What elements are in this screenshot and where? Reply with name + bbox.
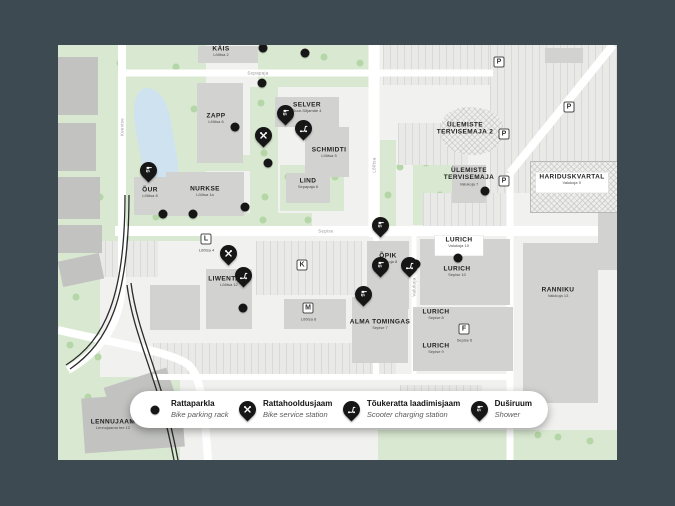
green-area [114,213,312,233]
legend-item-shower-pin: DuširuumShower [470,399,532,419]
bike-parking-dot[interactable] [231,123,240,132]
legend: RattaparklaBike parking rackRattahooldus… [130,391,548,428]
bike-parking-dot[interactable] [481,187,490,196]
shower-icon [281,109,290,118]
badge-address: Lõõtsa 4 [198,248,213,253]
parking-dot-legend-icon [146,399,164,419]
shower-pin[interactable] [368,213,392,237]
tree [95,354,102,361]
building-badge: MLõõtsa 8 [303,303,314,314]
building [545,48,583,63]
legend-title: Rattahooldusjaam [263,399,332,409]
bike-parking-dot[interactable] [189,210,198,219]
shower-icon [376,261,385,270]
building-badge: FSepise 6 [459,324,470,335]
parking-badge: P [499,129,510,140]
legend-subtitle: Bike service station [263,410,332,420]
scooter-icon [299,124,308,133]
bike-service-icon [259,131,268,140]
legend-title: Tõukeratta laadimisjaam [367,399,460,409]
shower-icon [144,166,153,175]
shower-pin [467,398,491,422]
building [286,173,330,203]
building-badge: K [297,260,308,271]
legend-title: Rattaparkla [171,399,229,409]
building [198,46,258,63]
bike-service-icon [243,405,252,414]
legend-text: DuširuumShower [495,399,532,419]
scooter-pin [339,398,363,422]
building [58,177,100,219]
bike-parking-dot[interactable] [264,159,273,168]
tree [173,64,180,71]
legend-item-parking-dot: RattaparklaBike parking rack [146,399,229,419]
parking-badge: P [494,57,505,68]
scooter-icon [347,405,356,414]
shower-icon [376,221,385,230]
tree [385,192,392,199]
tree [258,100,265,107]
scooter-pin[interactable] [231,263,255,287]
parking-lot [383,45,490,85]
shower-icon [359,290,368,299]
tree [260,217,267,224]
building [58,123,96,171]
legend-subtitle: Shower [495,410,532,420]
shower-icon [475,405,484,414]
bike-service-icon [224,249,233,258]
tree [117,60,124,67]
street-label: Sepise [318,229,333,234]
street-label: Lõõtsa [372,157,377,172]
legend-text: RattahooldusjaamBike service station [263,399,332,419]
scooter-pin[interactable] [397,253,421,277]
shower-pin[interactable] [368,253,392,277]
street-label: Valukoja [412,277,417,296]
building [352,297,408,363]
badge-address: Lõõtsa 8 [300,317,315,322]
tree [261,150,268,157]
tree [587,438,594,445]
building [420,239,510,305]
tree [357,60,364,67]
building [523,243,598,403]
tree [321,54,328,61]
shower-pin[interactable] [136,158,160,182]
tree [262,194,269,201]
tree [555,434,562,441]
bike-parking-dot[interactable] [159,210,168,219]
green-area [258,45,374,87]
legend-item-service-pin: RattahooldusjaamBike service station [238,399,332,419]
street-label: Sepapaja [247,71,268,76]
tree [535,432,542,439]
bike-parking-dot[interactable] [239,304,248,313]
page: KÄISLõõtsa 2ZAPPLõõtsa 6SELVERSuur-Sõjam… [0,0,675,506]
construction-area [530,161,617,213]
tree [345,70,352,77]
tree [67,342,74,349]
tree [305,217,312,224]
service-pin[interactable] [216,241,240,265]
legend-subtitle: Bike parking rack [171,410,229,420]
building [58,225,102,253]
parking-badge: P [564,102,575,113]
shower-pin-legend-icon [470,399,488,419]
shower-pin[interactable] [351,282,375,306]
legend-text: RattaparklaBike parking rack [171,399,229,419]
bike-parking-dot[interactable] [241,203,250,212]
parking-badge: P [499,176,510,187]
building-badge: LLõõtsa 4 [201,234,212,245]
parking-lot [256,241,362,295]
bike-parking-dot-icon [151,406,160,415]
building [166,172,244,216]
legend-title: Duširuum [495,399,532,409]
building [58,57,98,115]
bike-parking-dot[interactable] [454,254,463,263]
badge-address: Sepise 6 [456,338,472,343]
legend-text: Tõukeratta laadimisjaamScooter charging … [367,399,460,419]
building [284,299,346,329]
building [150,285,200,330]
green-area [378,430,617,460]
scooter-pin-legend-icon [342,399,360,419]
tree [73,294,80,301]
bike-parking-dot[interactable] [258,79,267,88]
construction-area [441,107,503,155]
street-label: Keevise [120,118,125,136]
parking-lot [98,241,158,277]
service-pin-legend-icon [238,399,256,419]
legend-item-scooter-pin: Tõukeratta laadimisjaamScooter charging … [342,399,460,419]
service-pin [235,398,259,422]
legend-subtitle: Scooter charging station [367,410,460,420]
shower-pin[interactable] [273,101,297,125]
scooter-pin[interactable] [291,116,315,140]
scooter-icon [405,261,414,270]
building [452,165,486,203]
service-pin[interactable] [251,123,275,147]
scooter-icon [239,271,248,280]
bike-parking-dot[interactable] [301,49,310,58]
